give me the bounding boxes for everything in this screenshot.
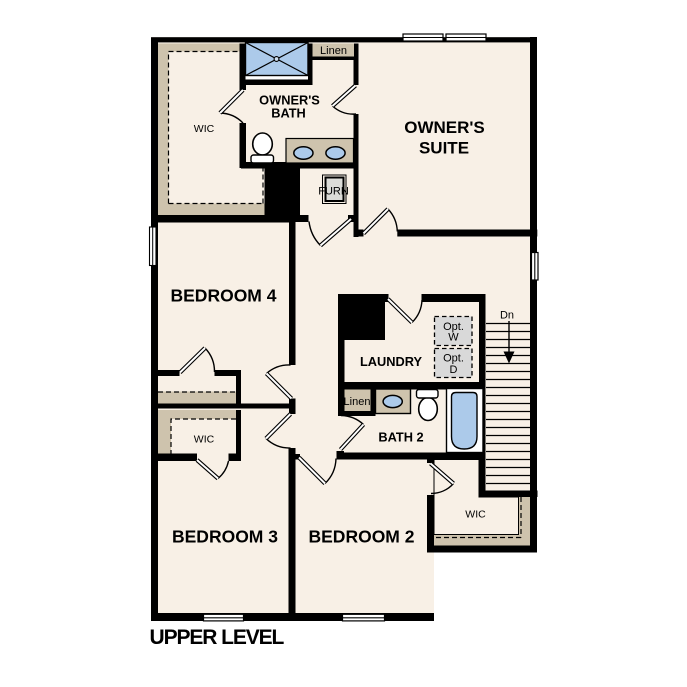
svg-text:BATH: BATH bbox=[271, 106, 306, 121]
svg-text:Dn: Dn bbox=[500, 310, 514, 322]
svg-text:D: D bbox=[450, 364, 458, 376]
svg-text:Linen: Linen bbox=[320, 45, 347, 57]
svg-text:BATH 2: BATH 2 bbox=[378, 430, 423, 445]
svg-text:WIC: WIC bbox=[465, 509, 486, 521]
svg-text:W: W bbox=[448, 332, 459, 344]
svg-text:WIC: WIC bbox=[194, 434, 215, 446]
svg-text:Opt.: Opt. bbox=[443, 353, 464, 365]
svg-text:BEDROOM 3: BEDROOM 3 bbox=[172, 527, 278, 547]
svg-text:WIC: WIC bbox=[194, 123, 215, 135]
svg-text:FURN: FURN bbox=[318, 186, 349, 198]
svg-text:LAUNDRY: LAUNDRY bbox=[360, 354, 423, 369]
svg-text:BEDROOM 2: BEDROOM 2 bbox=[309, 527, 415, 547]
svg-text:UPPER LEVEL: UPPER LEVEL bbox=[150, 626, 285, 649]
svg-text:SUITE: SUITE bbox=[419, 139, 469, 158]
svg-text:BEDROOM 4: BEDROOM 4 bbox=[171, 286, 277, 306]
svg-text:Linen: Linen bbox=[344, 396, 371, 408]
svg-text:OWNER'S: OWNER'S bbox=[404, 118, 485, 137]
